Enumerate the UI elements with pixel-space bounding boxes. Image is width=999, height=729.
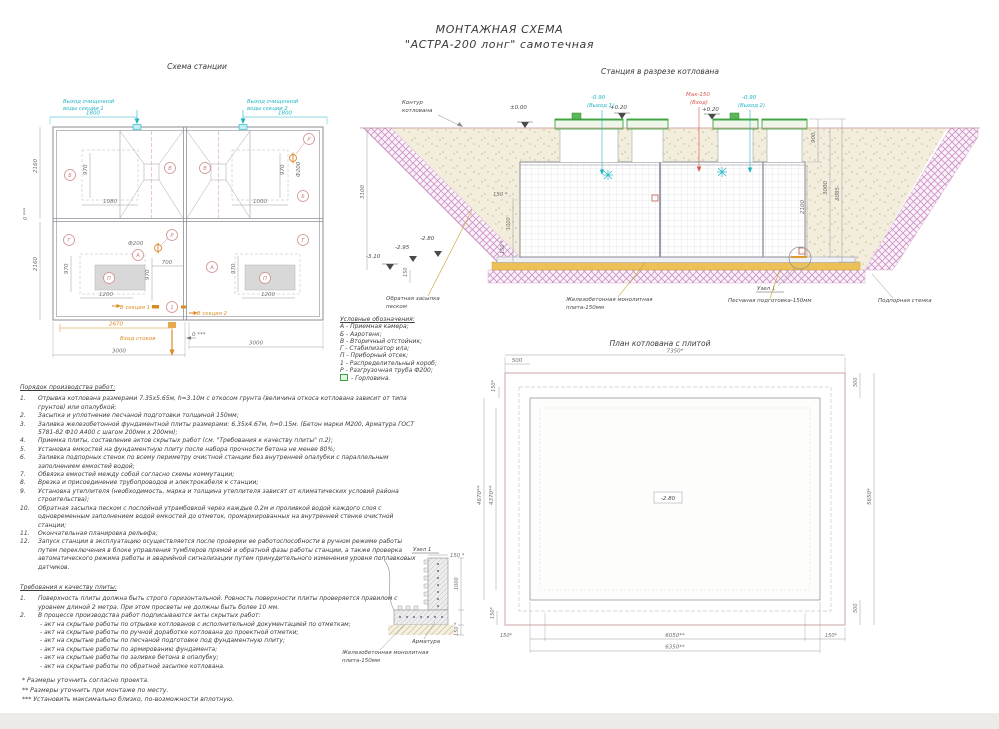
dim-970: 970 <box>83 164 89 175</box>
to-section1-label: В секция 1 <box>120 305 150 311</box>
instrument-bay <box>95 265 145 290</box>
zero-gap-note: 0 *** <box>192 332 206 338</box>
footnotes: * Размеры уточнить согласно проекта. ** … <box>22 676 234 705</box>
dim-3000: 3000 <box>249 341 263 347</box>
dim-2670: 2670 <box>109 322 123 328</box>
max-inflow-label: Max-150 <box>686 92 710 98</box>
sand-bed-layer <box>492 262 860 270</box>
dim-970: 970 <box>64 263 70 274</box>
dim-2100: 2100 <box>800 200 806 214</box>
level-3.10: -3.10 <box>366 254 381 260</box>
contour-label-l2: котлована <box>402 108 433 114</box>
dim-970: 970 <box>280 164 286 175</box>
dim-150: 150* <box>500 633 513 639</box>
work-order-item: 3.Заливка железобетонной фундаментной пл… <box>20 421 418 438</box>
work-order-item: 2.Засыпка и уплотнение песчаной подготов… <box>20 412 418 420</box>
marker-P: П <box>107 276 111 282</box>
requirement-item: 2.В процессе производства работ подписыв… <box>20 612 400 620</box>
level-0.00: ±0.00 <box>510 105 527 111</box>
retaining-wall-label: Подпорная стенка <box>878 298 932 304</box>
legend-item-gorlovina: - Горловина. <box>340 374 490 382</box>
level-0.20-b: +0.20 <box>702 107 719 113</box>
marker-A: А <box>209 265 214 271</box>
act-item: - акт на скрытые работы по отрывке котло… <box>40 621 400 629</box>
requirement-item: 1.Поверхность плиты должна быть строго г… <box>20 595 400 612</box>
dim-1000: 1000 <box>454 577 460 590</box>
legend-item: А - Приемная камера; <box>340 323 490 330</box>
act-item: - акт на скрытые работы по песчаной подг… <box>40 637 400 645</box>
station-tank <box>520 162 805 257</box>
act-item: - акт на скрытые работы по ручной дорабо… <box>40 629 400 637</box>
legend-item: Г - Стабилизатор ила; <box>340 345 490 352</box>
act-item: - акт на скрытые работы по заливке бетон… <box>40 654 400 662</box>
retaining-wall-section <box>428 558 448 610</box>
footnote: *** Установить максимально близко, по-во… <box>22 695 234 705</box>
level-0.90-2: -0.90 <box>742 95 757 101</box>
gorlovina-icon <box>730 113 739 119</box>
outlet-annotations: 1800 1800 Выход очищенной воды секции 1 … <box>50 99 327 130</box>
marker-B: Б <box>68 173 72 179</box>
work-order-item: 9.Установка утеплителя (необходимость, м… <box>20 488 418 505</box>
dim-500: 500 <box>853 377 859 387</box>
dim-150: 150* <box>825 633 838 639</box>
backfill-label-l2: песком <box>386 304 407 310</box>
dim-150s: 150 * <box>454 622 460 636</box>
dim-970: 970 <box>231 263 237 274</box>
dim-150s: 150 * <box>500 240 506 254</box>
dim-2160: 2160 <box>33 159 39 173</box>
dim-4370: 4370** <box>489 485 495 505</box>
dim-phi200: Ф200 <box>296 161 302 177</box>
dim-1000: 1000 <box>253 199 267 205</box>
act-item: - акт на скрытые работы по обратной засы… <box>40 663 400 671</box>
level-0.90-1: -0.90 <box>591 95 606 101</box>
dim-7350: 7350* <box>667 349 684 355</box>
legend: Условные обозначения: А - Приемная камер… <box>340 316 490 383</box>
work-order-item: 8.Врезка и присоединение трубопроводов и… <box>20 479 418 487</box>
dim-500: 500 <box>853 603 859 613</box>
station-plan-drawing: Схема станции <box>20 58 350 368</box>
dim-3000: 3000 <box>112 349 126 355</box>
work-order-item: 12.Запуск станции в эксплуатацию осущест… <box>20 538 418 572</box>
dim-150s: 150 * <box>493 192 508 198</box>
slab-requirements: Требования к качеству плиты: 1.Поверхнос… <box>20 584 400 671</box>
dim-150: 150* <box>491 379 497 392</box>
work-order-item: 11.Окончательная планировка рельефа; <box>20 530 418 538</box>
drawing-sheet: МОНТАЖНАЯ СХЕМА "АСТРА-200 лонг" самотеч… <box>0 0 999 729</box>
outlet2-label-l1: Выход очищенной <box>247 99 299 105</box>
marker-A: А <box>135 253 140 259</box>
dim-1080: 1080 <box>103 199 117 205</box>
dim-3100: 3100 <box>360 185 366 199</box>
sheet-edge-shadow <box>0 713 999 729</box>
dim-1200: 1200 <box>99 292 113 298</box>
pit-level-2.80: -2.80 <box>661 496 676 502</box>
gorlovina-icon <box>572 113 581 119</box>
dim-500: 500 <box>512 358 523 364</box>
work-order-item: 7.Обвязка емкостей между собой согласно … <box>20 471 418 479</box>
dim-2160: 2160 <box>33 257 39 271</box>
act-item: - акт на скрытые работы по армированию ф… <box>40 646 400 654</box>
rebar-label: Арматура <box>411 639 441 645</box>
dim-5650: 5650* <box>867 488 873 505</box>
dim-6350: 6350** <box>665 645 685 651</box>
work-order: Порядок производства работ: 1.Отрывка ко… <box>20 384 418 572</box>
level-0.20-a: +0.20 <box>610 105 627 111</box>
dim-zero-gap: 0 *** <box>23 207 29 220</box>
footnote: * Размеры уточнить согласно проекта. <box>22 676 234 686</box>
legend-item: П - Приборный отсек; <box>340 352 490 359</box>
dim-150s: 150 * <box>450 553 465 559</box>
marker-V: В <box>168 166 172 172</box>
footnote: ** Размеры уточнить при монтаже по месту… <box>22 686 234 696</box>
dim-900: 900 <box>811 132 817 143</box>
inlet-annotations: 2670 Вход стоков В секция 1 В секция 2 0… <box>60 304 228 356</box>
sand-label: Песчаная подготовка-150мм <box>728 298 812 304</box>
work-order-item: 1.Отрывка котлована размерами 7.35x5.65м… <box>20 395 418 412</box>
legend-item: 1 - Распределительный короб; <box>340 360 490 367</box>
dim-4670: 4670** <box>477 485 483 505</box>
legend-item: Р - Разгрузочная труба Ф200; <box>340 367 490 374</box>
work-order-title: Порядок производства работ: <box>20 384 418 392</box>
pit-plan-title: План котлована с плитой <box>610 339 711 348</box>
outlet1-label-l1: Выход очищенной <box>63 99 115 105</box>
dim-3000: 3000 <box>823 181 829 195</box>
level-2.95: -2.95 <box>395 245 410 251</box>
dim-1000: 1000 <box>506 217 512 230</box>
contour-label-l1: Контур <box>402 100 423 106</box>
dim-700: 700 <box>162 260 173 266</box>
pit-plan-drawing: План котлована с плитой -2.80 7350* 500 … <box>470 335 920 665</box>
hidden-work-acts: - акт на скрытые работы по отрывке котло… <box>40 621 400 671</box>
cross-section-drawing: Станция в разрезе котлована <box>350 58 990 323</box>
outlet2-note: (Выход 2) <box>738 103 765 109</box>
marker-P: П <box>263 276 267 282</box>
dim-6050: 6050** <box>665 633 685 639</box>
slab-label-l2: плита-150мм <box>566 305 604 311</box>
work-order-item: 4.Приемка плиты, составление актов скрыт… <box>20 437 418 445</box>
dim-phi200: Ф200 <box>128 241 144 247</box>
work-order-item: 6.Заливка подпорных стенок по всему пери… <box>20 454 418 471</box>
title-line1: МОНТАЖНАЯ СХЕМА <box>0 22 999 37</box>
dim-970: 970 <box>145 269 151 280</box>
document-title: МОНТАЖНАЯ СХЕМА "АСТРА-200 лонг" самотеч… <box>0 22 999 52</box>
cross-section-title: Станция в разрезе котлована <box>601 67 719 76</box>
gorlovina-icon <box>340 374 348 381</box>
marker-V: В <box>203 166 207 172</box>
work-order-item: 5.Установка емкостей на фундаментную пли… <box>20 446 418 454</box>
backfill-label-l1: Обратная засыпка <box>386 296 440 302</box>
inlet-label: Вход стоков <box>120 336 155 342</box>
station-plan-title: Схема станции <box>167 62 227 71</box>
dim-150: 150* <box>490 606 496 619</box>
plan-dim-lines <box>40 127 323 357</box>
slab-label-l1: Железобетонная монолитная <box>565 297 653 303</box>
inflow-note: (Вход) <box>690 100 708 106</box>
pit-bottom-band <box>488 270 865 283</box>
marker-1: 1 <box>170 305 173 311</box>
legend-item: В - Вторичный отстойник; <box>340 338 490 345</box>
to-section2-label: В секция 2 <box>197 311 228 317</box>
dim-150: 150 <box>403 267 409 277</box>
legend-item: Б - Аэротенк; <box>340 331 490 338</box>
dim-3085: 3085 <box>835 187 841 201</box>
marker-B: Б <box>301 194 305 200</box>
plan-walls <box>53 127 323 320</box>
dim-1200: 1200 <box>261 292 275 298</box>
work-order-item: 10.Обратная засыпка песком с послойной у… <box>20 505 418 530</box>
level-2.80: -2.80 <box>420 236 435 242</box>
legend-title: Условные обозначения: <box>340 316 490 323</box>
title-line2: "АСТРА-200 лонг" самотечная <box>0 37 999 52</box>
requirements-title: Требования к качеству плиты: <box>20 584 400 592</box>
outlet2-label-l2: воды секции 2 <box>247 106 288 112</box>
clarifier-cones <box>120 131 250 218</box>
outlet1-label-l2: воды секции 1 <box>63 106 104 112</box>
